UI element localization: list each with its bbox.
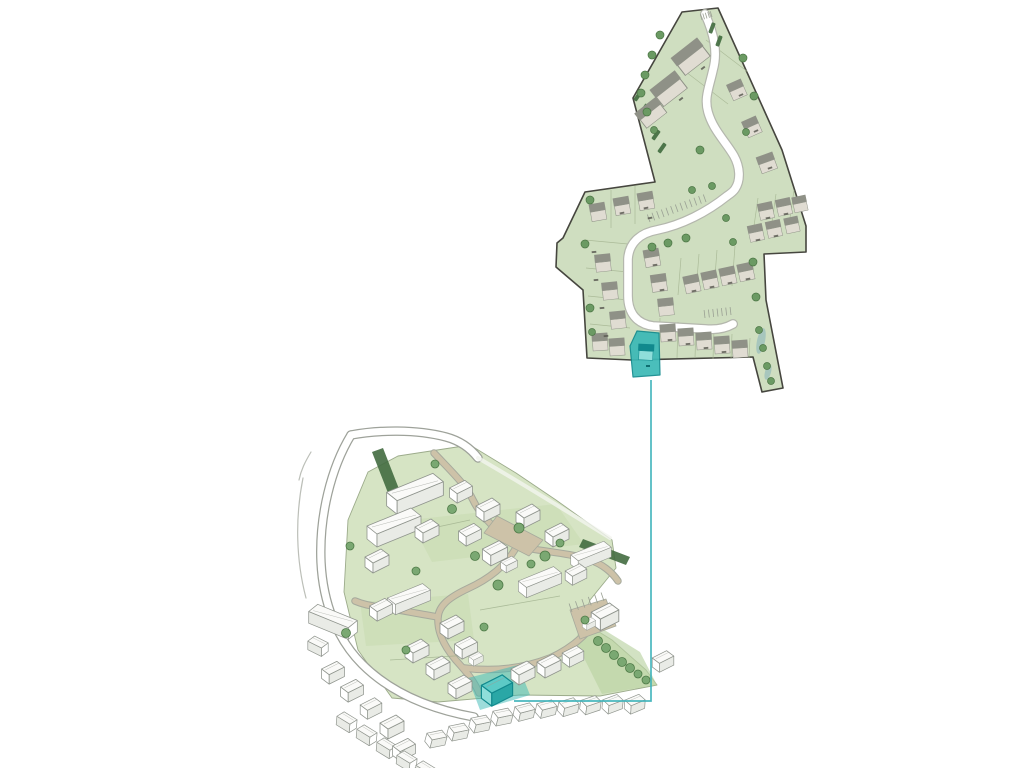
house-3d	[601, 693, 623, 715]
tree-symbol	[527, 560, 535, 568]
plan-building	[657, 297, 675, 316]
house-3d	[652, 651, 674, 673]
tree-symbol	[589, 329, 596, 336]
house-3d	[336, 711, 358, 733]
tree-symbol	[641, 71, 649, 79]
tree-symbol	[643, 108, 651, 116]
plan-building	[594, 253, 612, 272]
house-3d	[360, 698, 382, 720]
tree-symbol	[723, 215, 730, 222]
tree-symbol	[586, 304, 594, 312]
house-3d	[415, 760, 437, 768]
tree-symbol	[749, 258, 757, 266]
house-3d	[489, 705, 514, 730]
house-3d	[556, 695, 580, 719]
plan-building	[601, 281, 619, 300]
tree-symbol	[730, 239, 737, 246]
tree-symbol	[581, 616, 589, 624]
house-3d	[579, 694, 602, 717]
tree-symbol	[471, 552, 480, 561]
tree-symbol	[618, 658, 627, 667]
house-3d	[322, 661, 345, 684]
tree-symbol	[642, 676, 650, 684]
tree-symbol	[431, 460, 439, 468]
house-3d	[512, 700, 536, 724]
tree-symbol	[556, 539, 564, 547]
tree-symbol	[610, 651, 619, 660]
tree-symbol	[696, 146, 704, 154]
highlighted-plot-2d	[630, 331, 660, 377]
tree-symbol	[346, 542, 354, 550]
plan-building	[608, 337, 625, 356]
tree-symbol	[709, 183, 716, 190]
tree-symbol	[412, 567, 420, 575]
house-3d	[308, 636, 328, 656]
tree-symbol	[514, 523, 524, 533]
tree-symbol	[493, 580, 503, 590]
tree-symbol	[626, 664, 635, 673]
tree-symbol	[689, 187, 696, 194]
tree-symbol	[402, 646, 410, 654]
tree-symbol	[586, 196, 594, 204]
tree-symbol	[448, 505, 457, 514]
plan-building	[609, 310, 627, 329]
tree-symbol	[656, 31, 664, 39]
tree-symbol	[480, 623, 488, 631]
house-3d	[356, 724, 378, 746]
tree-symbol	[682, 234, 690, 242]
tree-symbol	[756, 327, 763, 334]
tree-symbol	[752, 293, 760, 301]
tree-symbol	[602, 644, 611, 653]
plan-building	[650, 273, 668, 293]
house-3d	[445, 720, 470, 745]
plan-building	[731, 339, 748, 358]
tree-symbol	[760, 345, 767, 352]
masterplan-2d-view	[556, 8, 809, 392]
tree-symbol	[750, 92, 758, 100]
axonometric-3d-view	[298, 431, 674, 768]
tree-symbol	[540, 551, 550, 561]
tree-symbol	[581, 240, 589, 248]
tree-symbol	[637, 89, 645, 97]
site-plan-canvas	[0, 0, 1024, 768]
tree-symbol	[648, 51, 656, 59]
plan-building	[589, 202, 608, 222]
tree-symbol	[342, 629, 351, 638]
tree-symbol	[768, 378, 775, 385]
site-plan-figure	[0, 0, 1024, 768]
house-3d	[380, 715, 404, 739]
house-3d	[423, 727, 448, 752]
tree-symbol	[651, 127, 658, 134]
tree-symbol	[743, 129, 750, 136]
tree-symbol	[764, 363, 771, 370]
house-3d	[624, 693, 646, 715]
tree-symbol	[594, 637, 603, 646]
tree-symbol	[664, 239, 672, 247]
tree-symbol	[634, 670, 642, 678]
tree-symbol	[739, 54, 747, 62]
house-3d	[341, 679, 364, 702]
tree-symbol	[648, 243, 656, 251]
